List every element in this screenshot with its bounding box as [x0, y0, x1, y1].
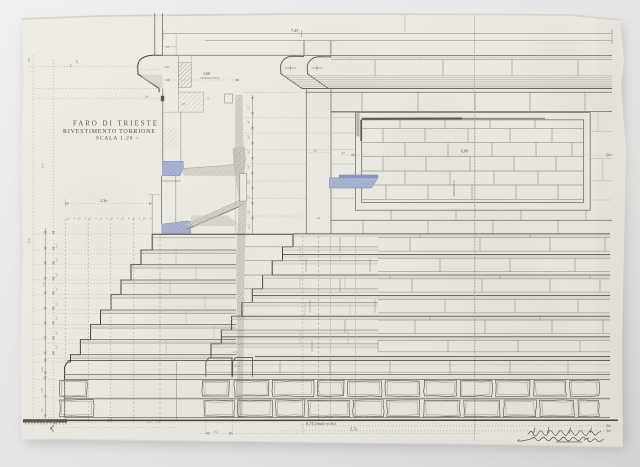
- svg-text:,25: ,25: [131, 217, 135, 221]
- svg-text:o,46: o,46: [40, 366, 44, 372]
- svg-text:MEZZERIA: MEZZERIA: [452, 179, 456, 196]
- svg-text:,25: ,25: [88, 217, 92, 221]
- svg-text:,25: ,25: [66, 217, 70, 221]
- svg-text:8,7: 8,7: [247, 105, 251, 109]
- svg-text:6o: 6o: [146, 95, 150, 99]
- svg-text:8,5o: 8,5o: [41, 162, 45, 168]
- svg-text:o,46: o,46: [40, 387, 44, 393]
- svg-text:RIVESTIMENTO TORRIONE: RIVESTIMENTO TORRIONE: [63, 129, 156, 135]
- svg-text:,25: ,25: [77, 217, 81, 221]
- svg-text:,25: ,25: [110, 217, 114, 221]
- svg-text:3,o4: 3,o4: [42, 281, 46, 287]
- svg-text:4,8: 4,8: [40, 408, 44, 412]
- svg-text:8,4o: 8,4o: [27, 237, 31, 243]
- svg-text:,25: ,25: [142, 217, 146, 221]
- svg-text:ALTEZZA UTILE: ALTEZZA UTILE: [200, 77, 220, 80]
- svg-text:,25: ,25: [121, 217, 125, 221]
- svg-text:3o,2: 3o,2: [247, 223, 251, 229]
- svg-text:FARO DI TRIESTE: FARO DI TRIESTE: [73, 121, 159, 128]
- svg-text:,25: ,25: [99, 217, 103, 221]
- svg-text:SCALA 1:20 ~: SCALA 1:20 ~: [96, 136, 139, 142]
